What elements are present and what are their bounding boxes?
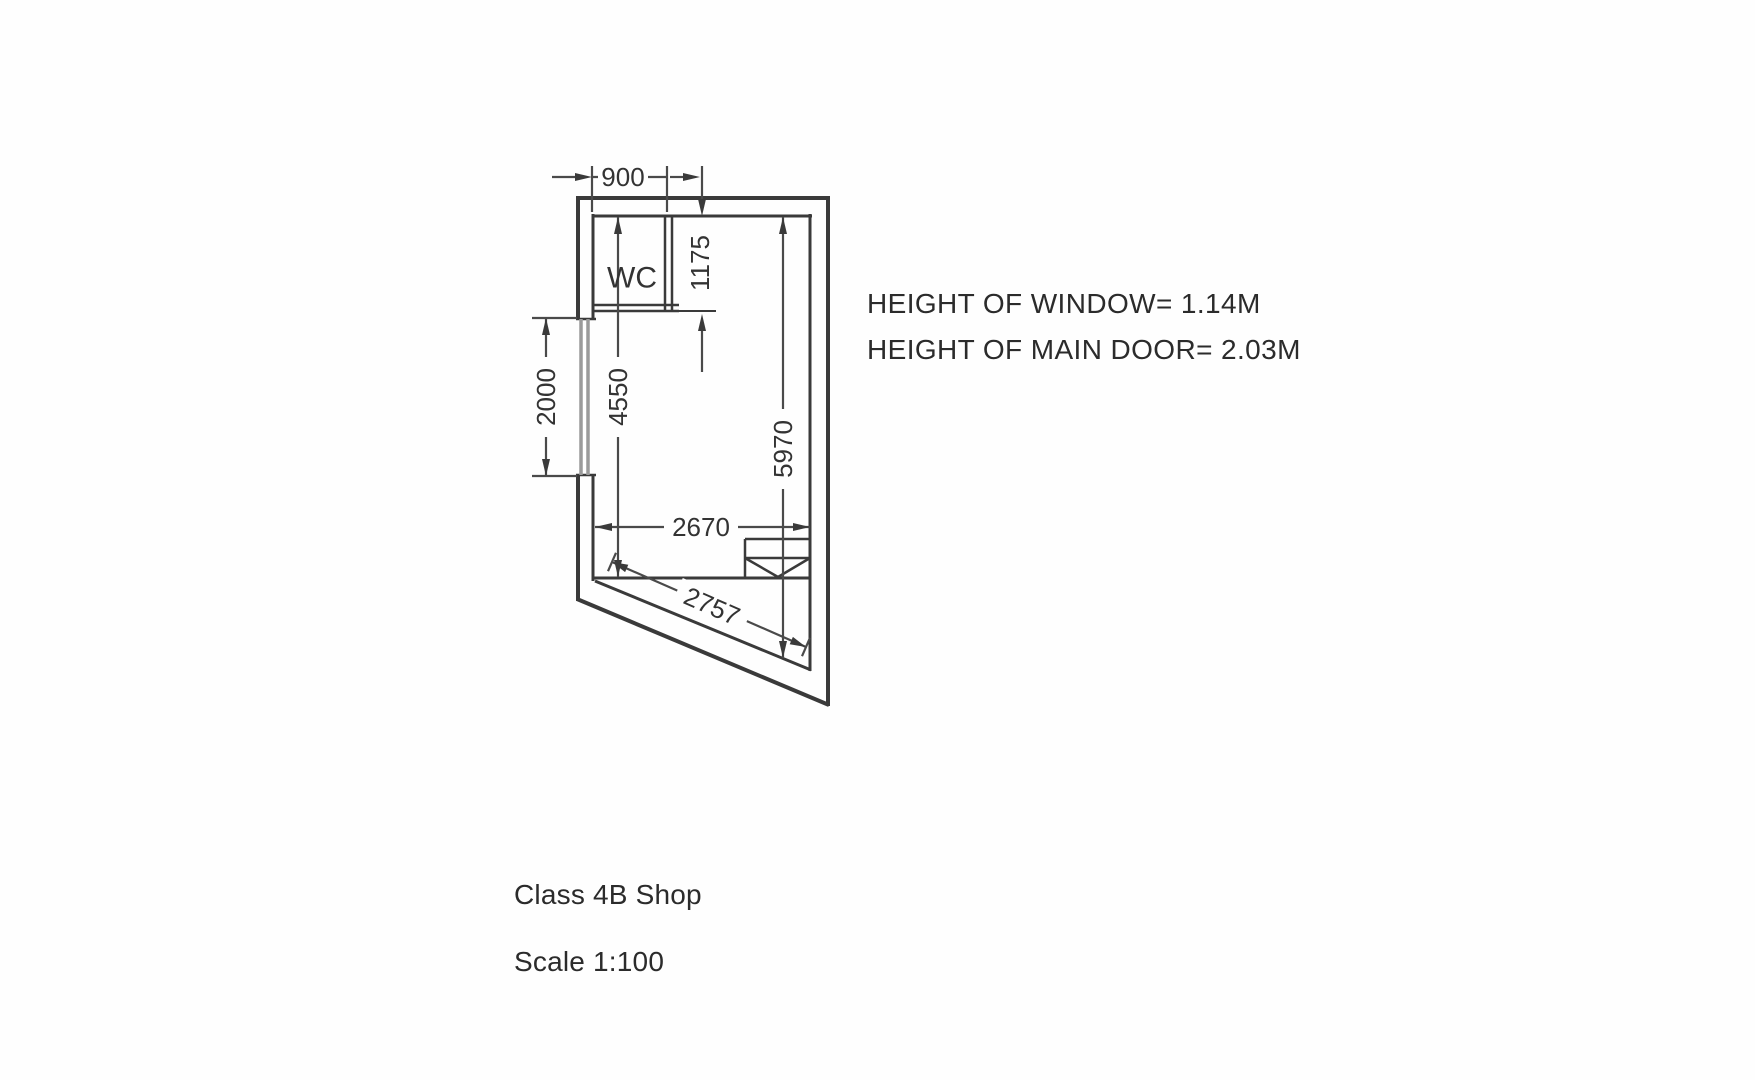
class-caption: Class 4B Shop <box>514 879 702 911</box>
drawing-page: 900 1175 2000 <box>0 0 1755 1080</box>
dim-label-wc-depth: 1175 <box>685 235 715 291</box>
dim-wc-depth: 1175 <box>685 199 715 372</box>
dim-top-width: 900 <box>552 162 702 212</box>
dim-label-interior-right-depth: 5970 <box>768 420 798 478</box>
dim-label-interior-left-depth: 4550 <box>603 368 633 426</box>
door-step-symbol <box>745 539 810 577</box>
door-height-note: HEIGHT OF MAIN DOOR= 2.03M <box>867 334 1301 366</box>
dim-label-top-width: 900 <box>601 162 644 192</box>
dim-label-interior-width: 2670 <box>672 512 730 542</box>
floor-plan: 900 1175 2000 <box>0 0 1755 1080</box>
dim-label-window-length: 2000 <box>531 368 561 426</box>
window-height-note: HEIGHT OF WINDOW= 1.14M <box>867 288 1261 320</box>
dim-splay-wall: 2757 <box>608 553 810 656</box>
dim-window-length: 2000 <box>531 318 577 476</box>
wc-room-label: WC <box>607 262 657 295</box>
dim-interior-width: 2670 <box>595 512 810 542</box>
scale-caption: Scale 1:100 <box>514 946 664 978</box>
dim-interior-right-depth: 5970 <box>768 217 798 658</box>
dim-label-splay-wall: 2757 <box>679 581 744 632</box>
window-symbol <box>576 319 596 475</box>
